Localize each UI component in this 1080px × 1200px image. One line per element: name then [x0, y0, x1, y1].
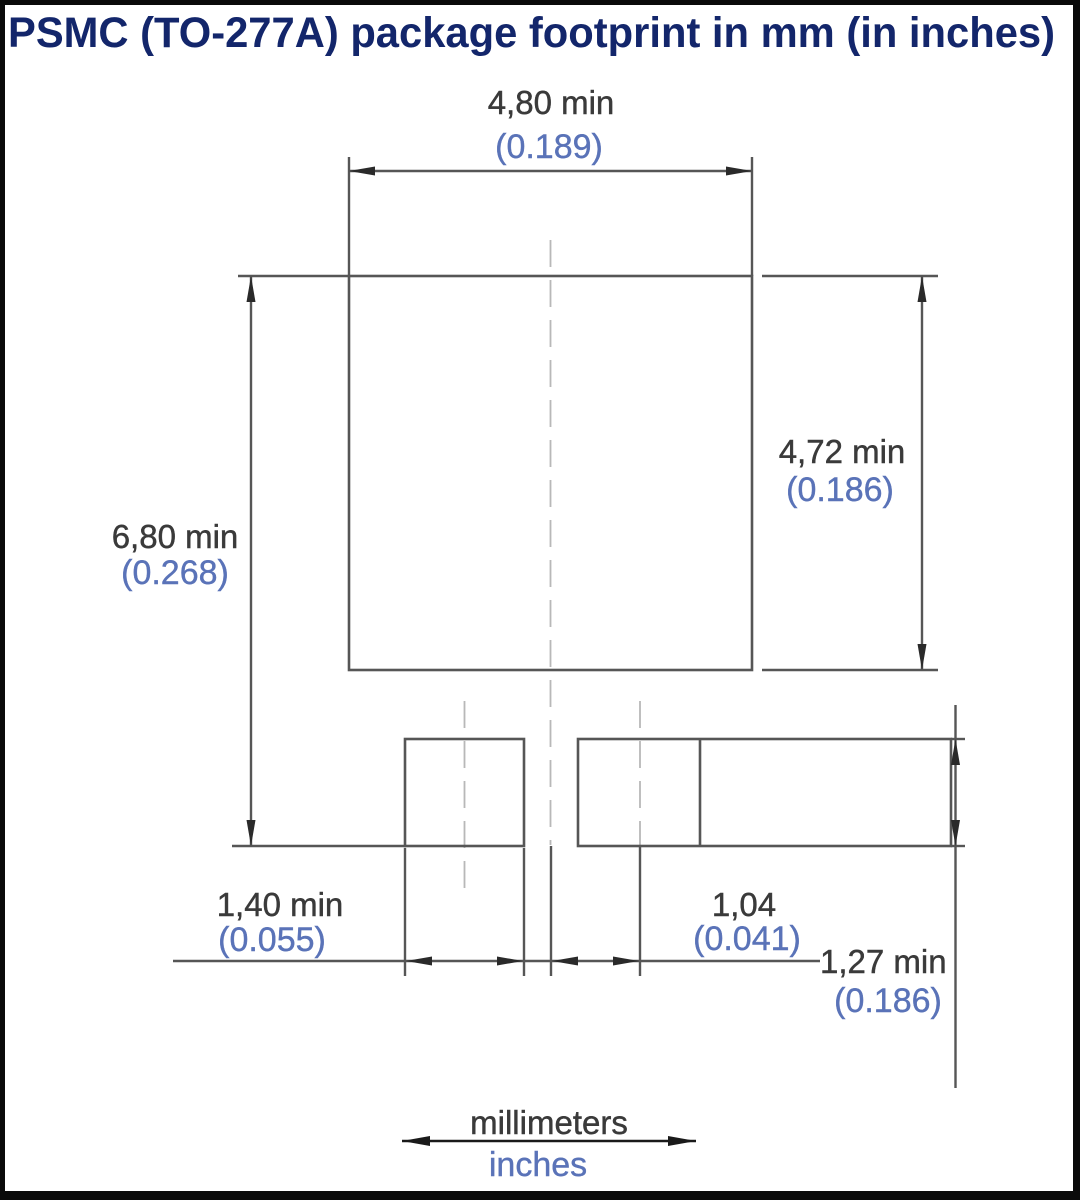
svg-text:(0.041): (0.041) — [693, 920, 801, 958]
svg-text:inches: inches — [489, 1146, 587, 1184]
svg-text:(0.186): (0.186) — [786, 471, 894, 509]
svg-text:1,27 min: 1,27 min — [820, 943, 947, 980]
svg-text:(0.189): (0.189) — [495, 128, 603, 166]
svg-text:millimeters: millimeters — [470, 1104, 628, 1141]
svg-text:(0.186): (0.186) — [834, 982, 942, 1020]
svg-text:6,80 min: 6,80 min — [112, 518, 239, 555]
svg-text:4,80 min: 4,80 min — [488, 84, 615, 121]
svg-text:4,72 min: 4,72 min — [779, 433, 906, 470]
svg-text:(0.055): (0.055) — [218, 921, 326, 959]
svg-text:(0.268): (0.268) — [121, 554, 229, 592]
svg-text:PSMC (TO-277A) package footpri: PSMC (TO-277A) package footprint in mm (… — [8, 9, 1055, 57]
svg-text:1,04: 1,04 — [712, 886, 776, 923]
svg-text:1,40 min: 1,40 min — [217, 886, 344, 923]
